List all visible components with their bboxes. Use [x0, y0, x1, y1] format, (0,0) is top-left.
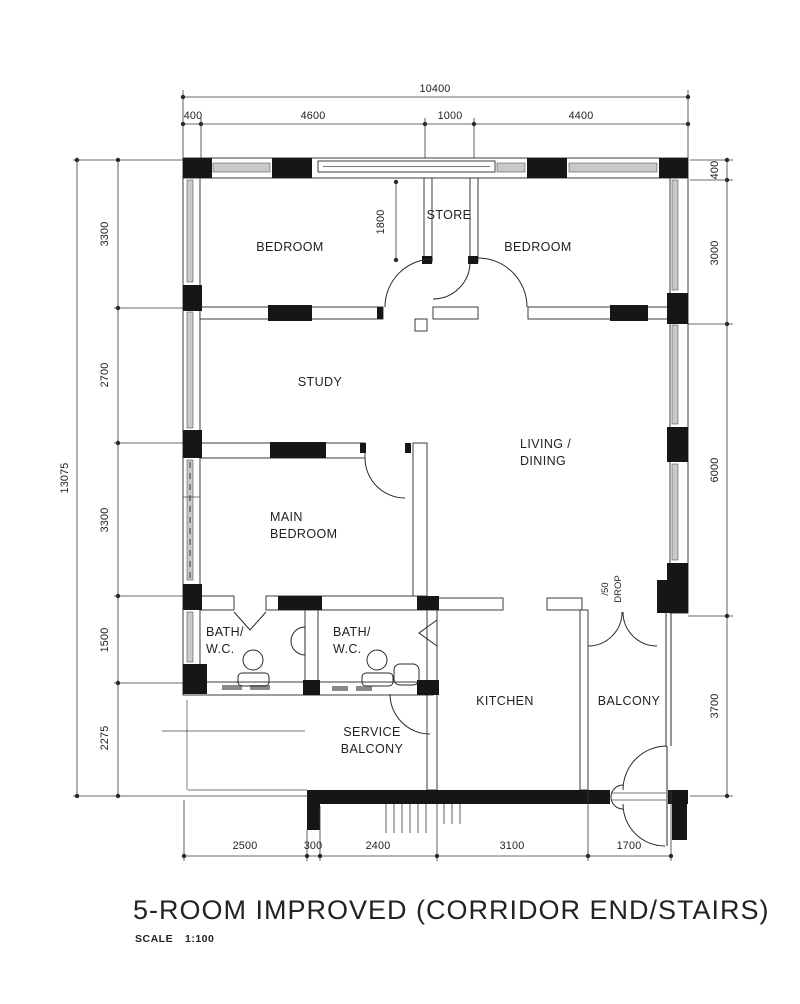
drawing-title: 5-ROOM IMPROVED (CORRIDOR END/STAIRS) [133, 895, 770, 925]
dim-bottom-2400: 2400 [366, 840, 391, 852]
dim-left-1500: 1500 [99, 628, 111, 653]
dim-store-1800: 1800 [375, 210, 387, 235]
label-balcony: BALCONY [598, 694, 661, 708]
label-main-bedroom-line2: BEDROOM [270, 527, 337, 541]
label-bedroom-right: BEDROOM [504, 240, 571, 254]
dim-right-3700: 3700 [709, 694, 721, 719]
window-left-bath [187, 612, 193, 662]
window-left-bedroom [187, 180, 193, 282]
dim-bottom-3100: 3100 [500, 840, 525, 852]
dim-top-total: 10400 [419, 83, 450, 95]
drop-note-50: /50 [600, 582, 611, 595]
dim-left-total: 13075 [59, 462, 71, 493]
toilet-icon [243, 650, 263, 670]
dim-bottom-2500: 2500 [233, 840, 258, 852]
label-bath2-line1: BATH/ [333, 625, 371, 639]
label-living-line1: LIVING / [520, 437, 571, 451]
window-bedroom-right [569, 163, 657, 172]
toilet-icon [367, 650, 387, 670]
dim-left-2275: 2275 [99, 726, 111, 751]
door-bedroom-right [478, 258, 527, 307]
dim-right-6000: 6000 [709, 458, 721, 483]
label-bath1-line1: BATH/ [206, 625, 244, 639]
title-block: 5-ROOM IMPROVED (CORRIDOR END/STAIRS) SC… [133, 895, 770, 945]
door-main-bedroom [365, 458, 405, 498]
corridor-wall [307, 790, 610, 804]
dim-left-2700: 2700 [99, 363, 111, 388]
bath-fixtures [238, 627, 419, 686]
label-main-bedroom-line1: MAIN [270, 510, 303, 524]
door-bedroom-left [385, 259, 433, 307]
dim-top-1000: 1000 [438, 110, 463, 122]
dim-bottom-300: 300 [304, 840, 323, 852]
window-right-living-upper [672, 325, 678, 424]
dim-bottom-1700: 1700 [617, 840, 642, 852]
floor-plan-drawing: 10400 400 4600 1000 4400 13075 3300 2700… [0, 0, 800, 1004]
door-balcony-right-leaf [623, 612, 657, 646]
door-entrance-upper-swing [623, 746, 667, 790]
door-store [433, 262, 470, 299]
label-service-balcony-line1: SERVICE [343, 725, 400, 739]
door-swings [234, 258, 667, 846]
scale-value: 1:100 [185, 933, 214, 945]
label-service-balcony-line2: BALCONY [341, 742, 404, 756]
label-study: STUDY [298, 375, 343, 389]
drop-note-drop: DROP [613, 575, 624, 602]
scale-label: SCALE [135, 933, 173, 945]
window-right-bedroom [672, 180, 678, 290]
label-bedroom-left: BEDROOM [256, 240, 323, 254]
label-living-line2: DINING [520, 454, 566, 468]
label-bath2-line2: W.C. [333, 642, 362, 656]
dim-left-3300a: 3300 [99, 222, 111, 247]
window-bedroom-left [213, 163, 270, 172]
floor-plan-page: 10400 400 4600 1000 4400 13075 3300 2700… [0, 0, 800, 1004]
basin-icon [291, 627, 305, 655]
label-bath1-line2: W.C. [206, 642, 235, 656]
door-entrance-stop [611, 785, 623, 809]
dim-left-3300b: 3300 [99, 508, 111, 533]
dim-top-400: 400 [184, 110, 203, 122]
door-balcony-left-leaf [588, 612, 622, 646]
dim-top-4400: 4400 [569, 110, 594, 122]
label-store: STORE [427, 208, 472, 222]
dim-right-400: 400 [709, 161, 721, 180]
dim-right-3000: 3000 [709, 241, 721, 266]
label-kitchen: KITCHEN [476, 694, 534, 708]
window-right-living-lower [672, 464, 678, 560]
window-left-study [187, 312, 193, 428]
dim-top-4600: 4600 [301, 110, 326, 122]
